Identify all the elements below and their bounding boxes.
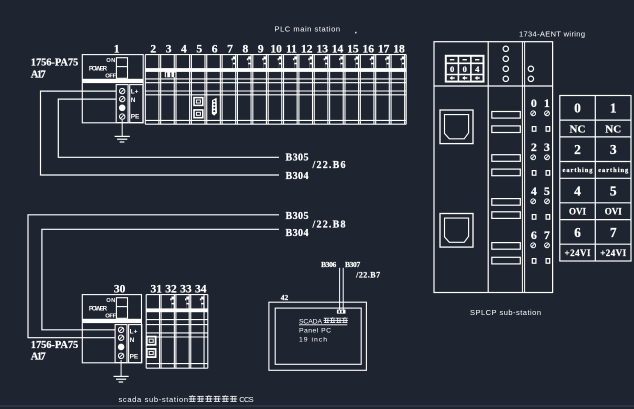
svg-text:12: 12 [301,44,313,56]
svg-text:0: 0 [574,101,581,116]
svg-text:6: 6 [212,44,218,56]
svg-text:N: N [131,97,136,104]
svg-text:5: 5 [196,44,202,56]
svg-text:3: 3 [610,142,617,157]
svg-text:L+: L+ [130,328,138,335]
svg-text:1: 1 [610,101,617,116]
svg-text:B304: B304 [286,228,309,239]
svg-text:1: 1 [114,44,120,56]
svg-text:/22.B7: /22.B7 [355,271,380,280]
svg-text:7: 7 [610,225,617,240]
svg-text:6: 6 [531,228,537,242]
svg-text:3: 3 [166,44,172,56]
svg-text:SPLCP sub-station: SPLCP sub-station [470,308,541,317]
svg-text:PE: PE [131,114,140,121]
svg-text:30: 30 [114,284,126,296]
svg-text:0: 0 [463,64,467,74]
svg-text:A17: A17 [31,352,46,363]
svg-text:17: 17 [378,44,390,56]
svg-text:4: 4 [475,64,480,74]
svg-text:/22.B6: /22.B6 [312,160,346,171]
svg-text:6: 6 [574,225,581,240]
svg-text:31: 31 [150,284,162,296]
svg-text:NC: NC [570,124,586,136]
svg-text:4: 4 [181,44,187,56]
svg-text:B305: B305 [286,211,309,222]
svg-text:A17: A17 [31,70,46,81]
svg-text:9: 9 [258,44,264,56]
svg-text:OFF: OFF [105,314,116,320]
svg-text:B306: B306 [321,260,336,269]
svg-text:34: 34 [195,284,207,296]
svg-text:18: 18 [393,44,405,56]
svg-text:7: 7 [227,44,233,56]
svg-text:3: 3 [544,140,550,154]
svg-text:15: 15 [347,44,359,56]
svg-text:PE: PE [130,354,139,361]
svg-text:2: 2 [531,140,537,154]
svg-text:1: 1 [544,96,550,110]
svg-text:16: 16 [362,44,374,56]
svg-text:OFF: OFF [105,74,116,80]
svg-text:7: 7 [544,228,550,242]
svg-text:Panel PC: Panel PC [299,327,331,334]
svg-text:+24VI: +24VI [600,248,626,258]
svg-text:1756-PA75: 1756-PA75 [31,58,79,69]
svg-text:11: 11 [286,44,297,56]
svg-text:/22.B8: /22.B8 [312,219,346,230]
svg-text:B307: B307 [345,260,360,269]
svg-text:4: 4 [574,183,581,198]
svg-text:N: N [130,337,135,344]
svg-text:2: 2 [150,44,156,56]
svg-text:+24VI: +24VI [565,248,591,258]
svg-text:OVI: OVI [569,206,587,216]
svg-text:CCS: CCS [239,395,254,404]
svg-text:32: 32 [165,284,177,296]
svg-text:B305: B305 [286,152,309,163]
svg-text:19 inch: 19 inch [299,337,327,344]
svg-text:ON: ON [106,58,115,64]
svg-text:earthing: earthing [598,167,629,174]
svg-text:33: 33 [180,284,192,296]
svg-text:L+: L+ [131,88,139,95]
svg-text:42: 42 [281,293,289,302]
svg-text:4: 4 [531,184,537,198]
svg-text:PLC main station: PLC main station [275,25,341,34]
svg-text:14: 14 [332,44,344,56]
svg-text:10: 10 [270,44,282,56]
svg-text:0: 0 [450,64,454,74]
svg-text:8: 8 [243,44,249,56]
svg-text:POWER: POWER [89,65,108,72]
svg-text:5: 5 [544,184,550,198]
svg-text:scada sub-station: scada sub-station [119,395,189,404]
svg-text:2: 2 [574,142,581,157]
svg-text:B304: B304 [286,171,309,182]
svg-text:POWER: POWER [89,305,108,312]
svg-text:earthing: earthing [563,167,594,174]
svg-text:13: 13 [316,44,328,56]
svg-text:5: 5 [610,183,617,198]
svg-text:1756-PA75: 1756-PA75 [31,340,79,351]
svg-text:NC: NC [605,124,621,136]
svg-text:OVI: OVI [605,206,623,216]
svg-text:0: 0 [531,96,537,110]
svg-text:1734-AENT wiring: 1734-AENT wiring [519,29,585,38]
svg-text:ON: ON [106,298,115,304]
